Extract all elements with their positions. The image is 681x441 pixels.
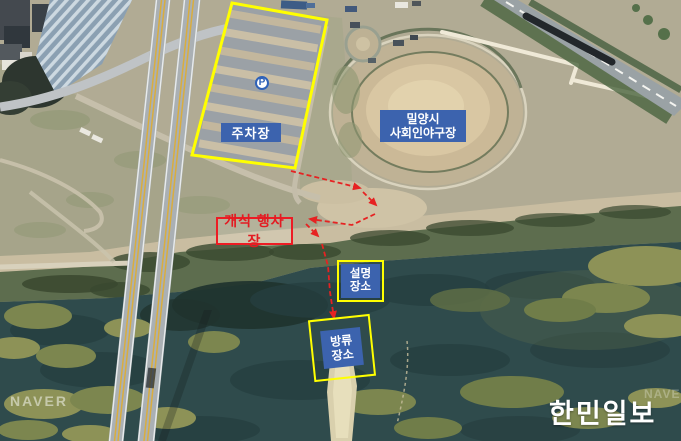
parking-label: 주차장 [221,123,281,142]
release-site-box: 방류 장소 [308,314,376,382]
stadium-label-line2: 사회인야구장 [390,126,456,140]
satellite-map-screenshot: P 주차장 밀양시 사회인야구장 개식 행사장 설명 장소 방류 장소 NAVE… [0,0,681,441]
release-line2: 장소 [331,347,354,363]
briefing-site-label: 설명 장소 [341,264,380,298]
briefing-line2: 장소 [350,281,371,294]
arrow-down-to-staging [363,192,376,205]
stadium-label: 밀양시 사회인야구장 [380,110,466,142]
release-site-label: 방류 장소 [320,327,364,369]
arrow-parking-to-field [291,171,360,188]
arrow-to-ceremony [310,214,375,225]
arrow-to-release [322,244,334,318]
naver-watermark: NAVER [10,393,68,409]
briefing-line1: 설명 [350,268,371,281]
briefing-site-box: 설명 장소 [337,260,384,302]
press-credit: 한민일보 [549,392,656,431]
arrow-to-briefing [306,224,318,236]
stadium-label-line1: 밀양시 [406,112,439,126]
parking-p-icon: P [255,76,269,90]
ceremony-site-box: 개식 행사장 [216,217,293,245]
